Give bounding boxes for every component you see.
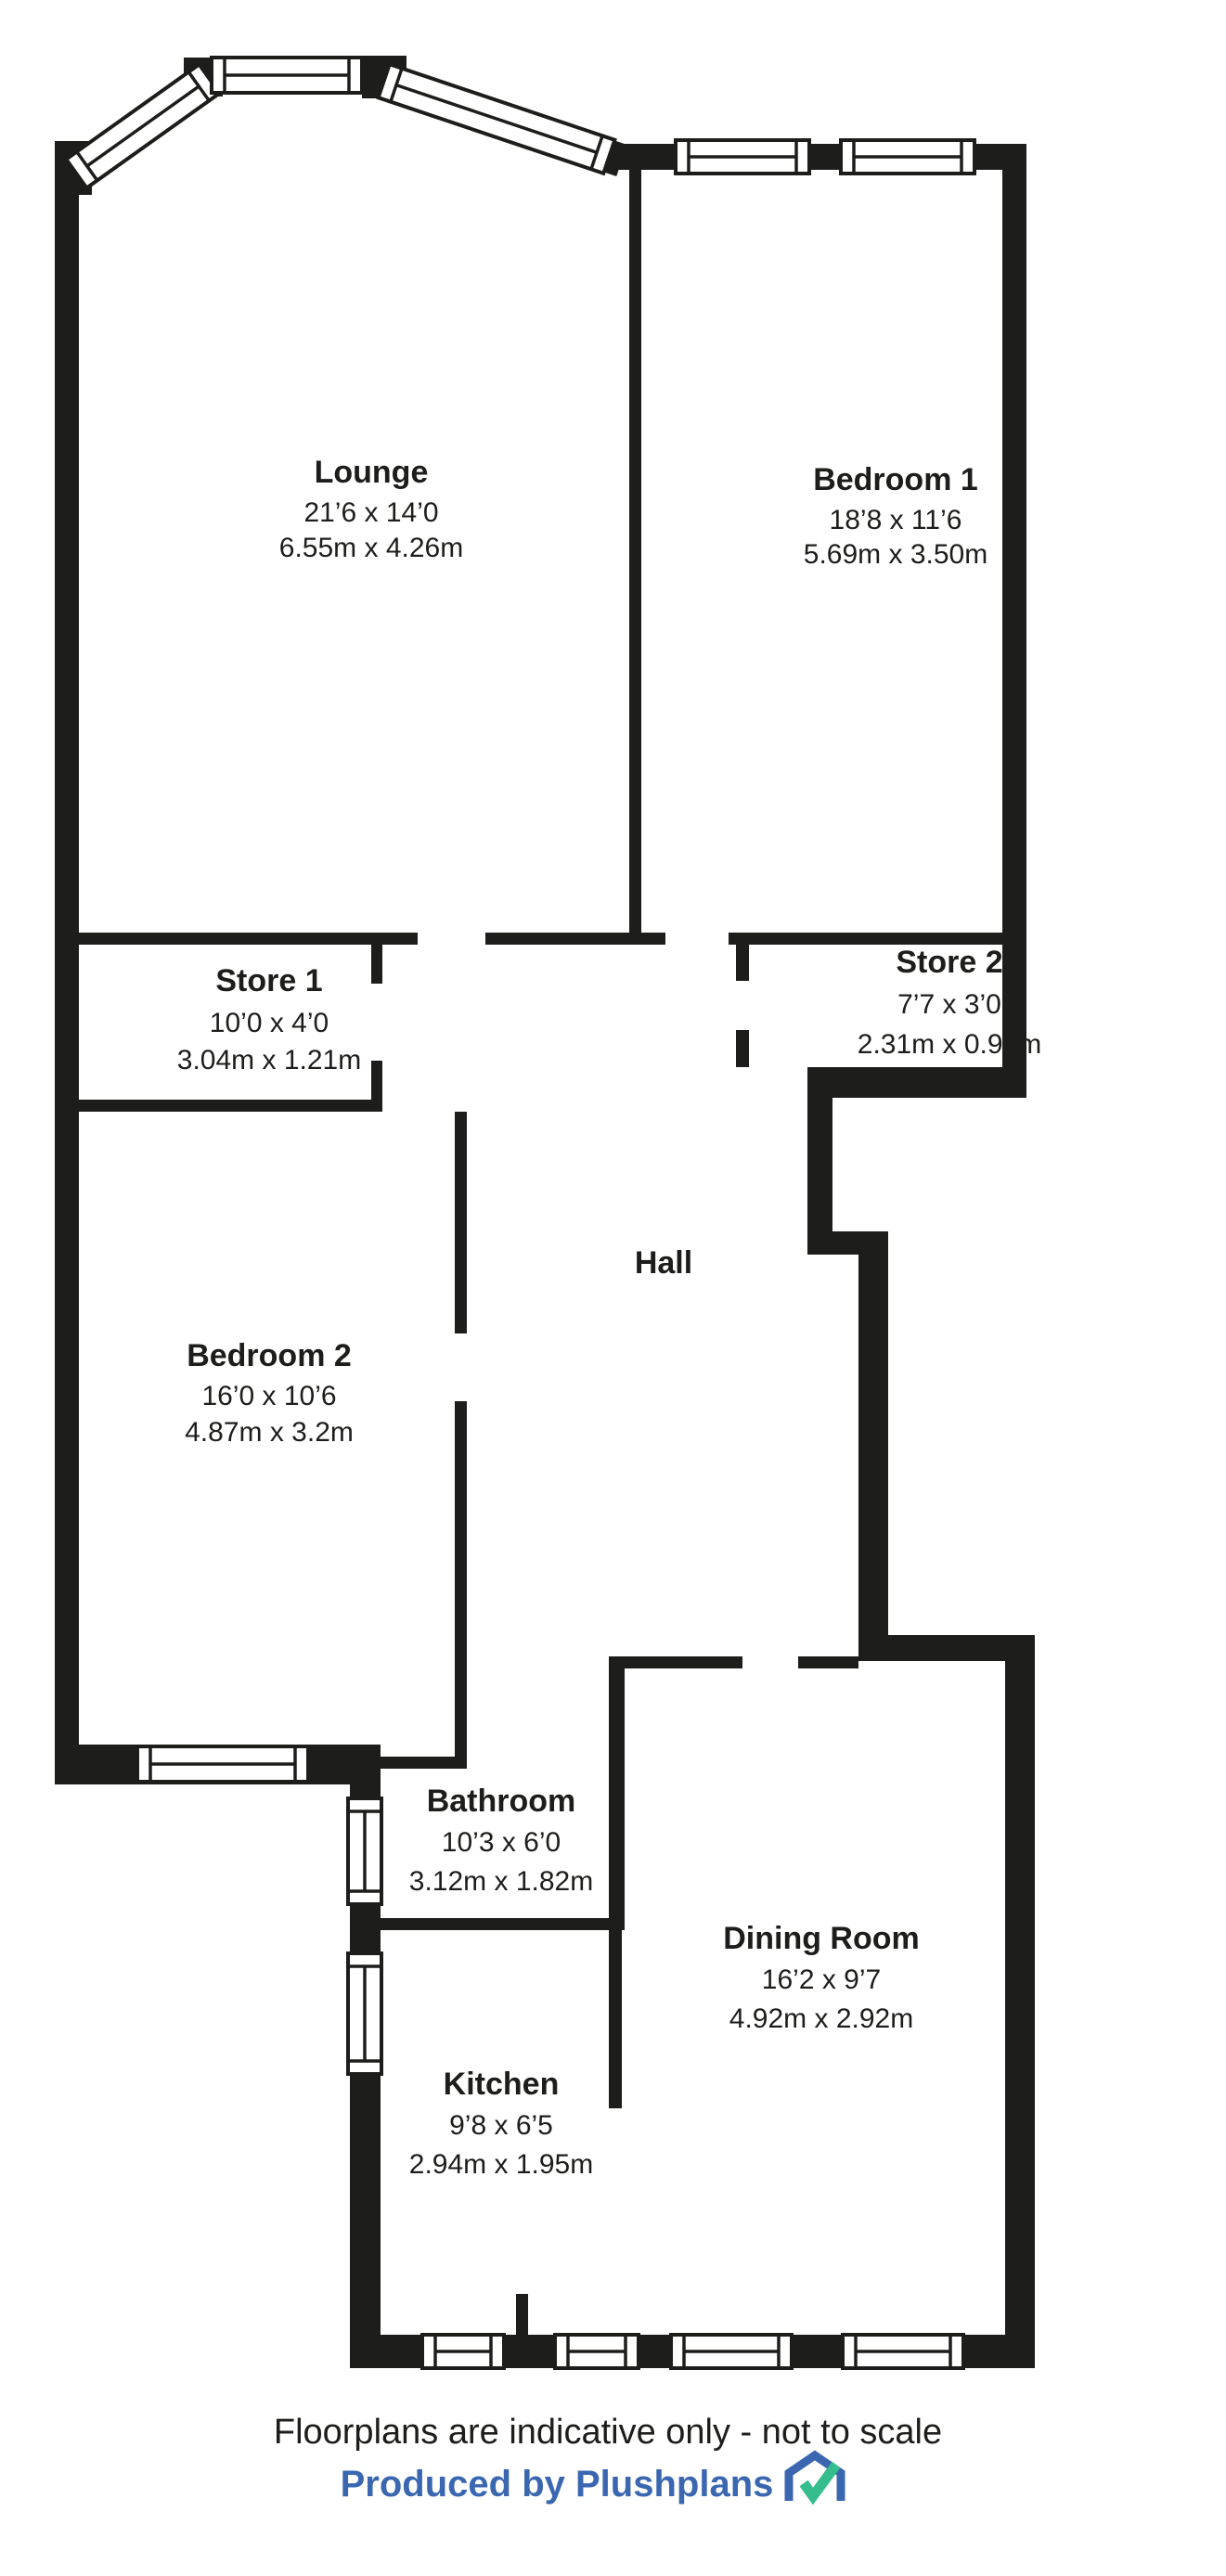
wall-lounge-bottom-a xyxy=(79,933,418,945)
window-dining-bottom-2 xyxy=(671,2335,792,2368)
wall-store2-bottom xyxy=(807,1067,1026,1098)
room-label-kitchen: Kitchen 9’8 x 6’5 2.94m x 1.95m xyxy=(409,2067,593,2180)
room-dims-imperial: 16’2 x 9’7 xyxy=(762,1964,881,1995)
room-name: Bedroom 1 xyxy=(813,462,978,497)
window-bathroom-left xyxy=(348,1798,381,1904)
wall-dining-top-b xyxy=(798,1656,858,1668)
room-dims-metric: 4.87m x 3.2m xyxy=(185,1417,354,1448)
room-name: Dining Room xyxy=(723,1921,920,1956)
room-dims-imperial: 10’0 x 4’0 xyxy=(210,1008,329,1038)
window-bay-top xyxy=(212,58,362,93)
room-label-bathroom: Bathroom 10’3 x 6’0 3.12m x 1.82m xyxy=(409,1784,593,1897)
room-label-hall: Hall xyxy=(635,1245,692,1281)
room-name: Store 2 xyxy=(896,945,1002,980)
wall-corridor-right-b xyxy=(858,1243,888,1661)
floorplan-page: Lounge 21’6 x 14’0 6.55m x 4.26m Bedroom… xyxy=(0,0,1226,2576)
room-label-bedroom1: Bedroom 1 18’8 x 11’6 5.69m x 3.50m xyxy=(804,462,987,570)
room-dims-metric: 3.12m x 1.82m xyxy=(409,1866,593,1897)
wall-kitchen-right xyxy=(609,1930,622,2108)
room-dims-metric: 4.92m x 2.92m xyxy=(729,2003,913,2034)
room-dims-imperial: 16’0 x 10’6 xyxy=(201,1381,336,1411)
wall-store2-left-stub-b xyxy=(736,1030,749,1067)
room-label-bedroom2: Bedroom 2 16’0 x 10’6 4.87m x 3.2m xyxy=(185,1338,354,1448)
wall-store2-left-stub-a xyxy=(736,945,749,981)
room-dims-metric: 6.55m x 4.26m xyxy=(279,533,463,563)
plushplans-logo-icon xyxy=(789,2455,841,2501)
room-dims-imperial: 21’6 x 14’0 xyxy=(303,497,438,528)
window-bay-left xyxy=(66,64,219,187)
room-dims-metric: 2.31m x 0.91m xyxy=(858,1029,1041,1060)
wall-bathroom-right xyxy=(609,1661,625,1930)
footer-credit: Produced by Plushplans xyxy=(341,2464,774,2505)
wall-bedroom2-right-a xyxy=(455,1112,467,1333)
wall-store2-top xyxy=(729,933,1002,945)
room-name: Store 1 xyxy=(215,963,322,998)
window-dining-bottom-1 xyxy=(555,2335,639,2368)
room-label-store1: Store 1 10’0 x 4’0 3.04m x 1.21m xyxy=(177,963,361,1075)
room-dims-imperial: 7’7 x 3’0 xyxy=(897,989,1001,1020)
room-dims-imperial: 10’3 x 6’0 xyxy=(442,1827,561,1858)
wall-right-upper xyxy=(1002,144,1026,1098)
room-label-lounge: Lounge 21’6 x 14’0 6.55m x 4.26m xyxy=(279,455,463,563)
room-name: Hall xyxy=(635,1245,692,1281)
footer-disclaimer: Floorplans are indicative only - not to … xyxy=(274,2413,942,2452)
room-dims-metric: 3.04m x 1.21m xyxy=(177,1045,361,1075)
window-dining-bottom-3 xyxy=(843,2335,963,2368)
room-label-dining: Dining Room 16’2 x 9’7 4.92m x 2.92m xyxy=(723,1921,920,2034)
wall-right-lower xyxy=(1005,1635,1035,2368)
room-dims-imperial: 9’8 x 6’5 xyxy=(449,2110,553,2141)
room-dims-imperial: 18’8 x 11’6 xyxy=(830,505,962,535)
room-name: Bedroom 2 xyxy=(187,1338,352,1373)
wall-store1-right-stub-b xyxy=(371,1061,382,1112)
window-bay-right xyxy=(379,64,615,174)
room-name: Bathroom xyxy=(427,1784,576,1819)
wall-store1-right-stub-a xyxy=(371,945,382,984)
footer: Floorplans are indicative only - not to … xyxy=(274,2413,942,2505)
room-name: Kitchen xyxy=(444,2067,560,2102)
wall-bathroom-top xyxy=(381,1757,467,1769)
wall-bathroom-kitchen-divider xyxy=(381,1918,622,1930)
room-dims-metric: 2.94m x 1.95m xyxy=(409,2149,593,2180)
window-kitchen-left xyxy=(348,1953,381,2074)
window-bedroom1-right xyxy=(841,140,974,174)
wall-bedroom2-right-b xyxy=(455,1401,467,1769)
wall-lounge-bottom-b xyxy=(485,933,665,945)
wall-store1-bottom xyxy=(79,1100,382,1112)
floorplan-canvas: Lounge 21’6 x 14’0 6.55m x 4.26m Bedroom… xyxy=(0,0,1226,2576)
room-dims-metric: 5.69m x 3.50m xyxy=(804,539,987,570)
window-kitchen-bottom xyxy=(422,2335,504,2368)
wall-dining-top-a xyxy=(609,1656,742,1668)
room-name: Lounge xyxy=(315,455,429,490)
logo-checkmark xyxy=(804,2465,836,2496)
wall-kitchen-dining-stub xyxy=(516,2294,528,2337)
wall-lounge-bedroom1-divider xyxy=(629,170,641,937)
wall-left xyxy=(55,148,79,1784)
window-bedroom2-bottom xyxy=(137,1746,308,1782)
window-bedroom1-left xyxy=(676,140,809,174)
